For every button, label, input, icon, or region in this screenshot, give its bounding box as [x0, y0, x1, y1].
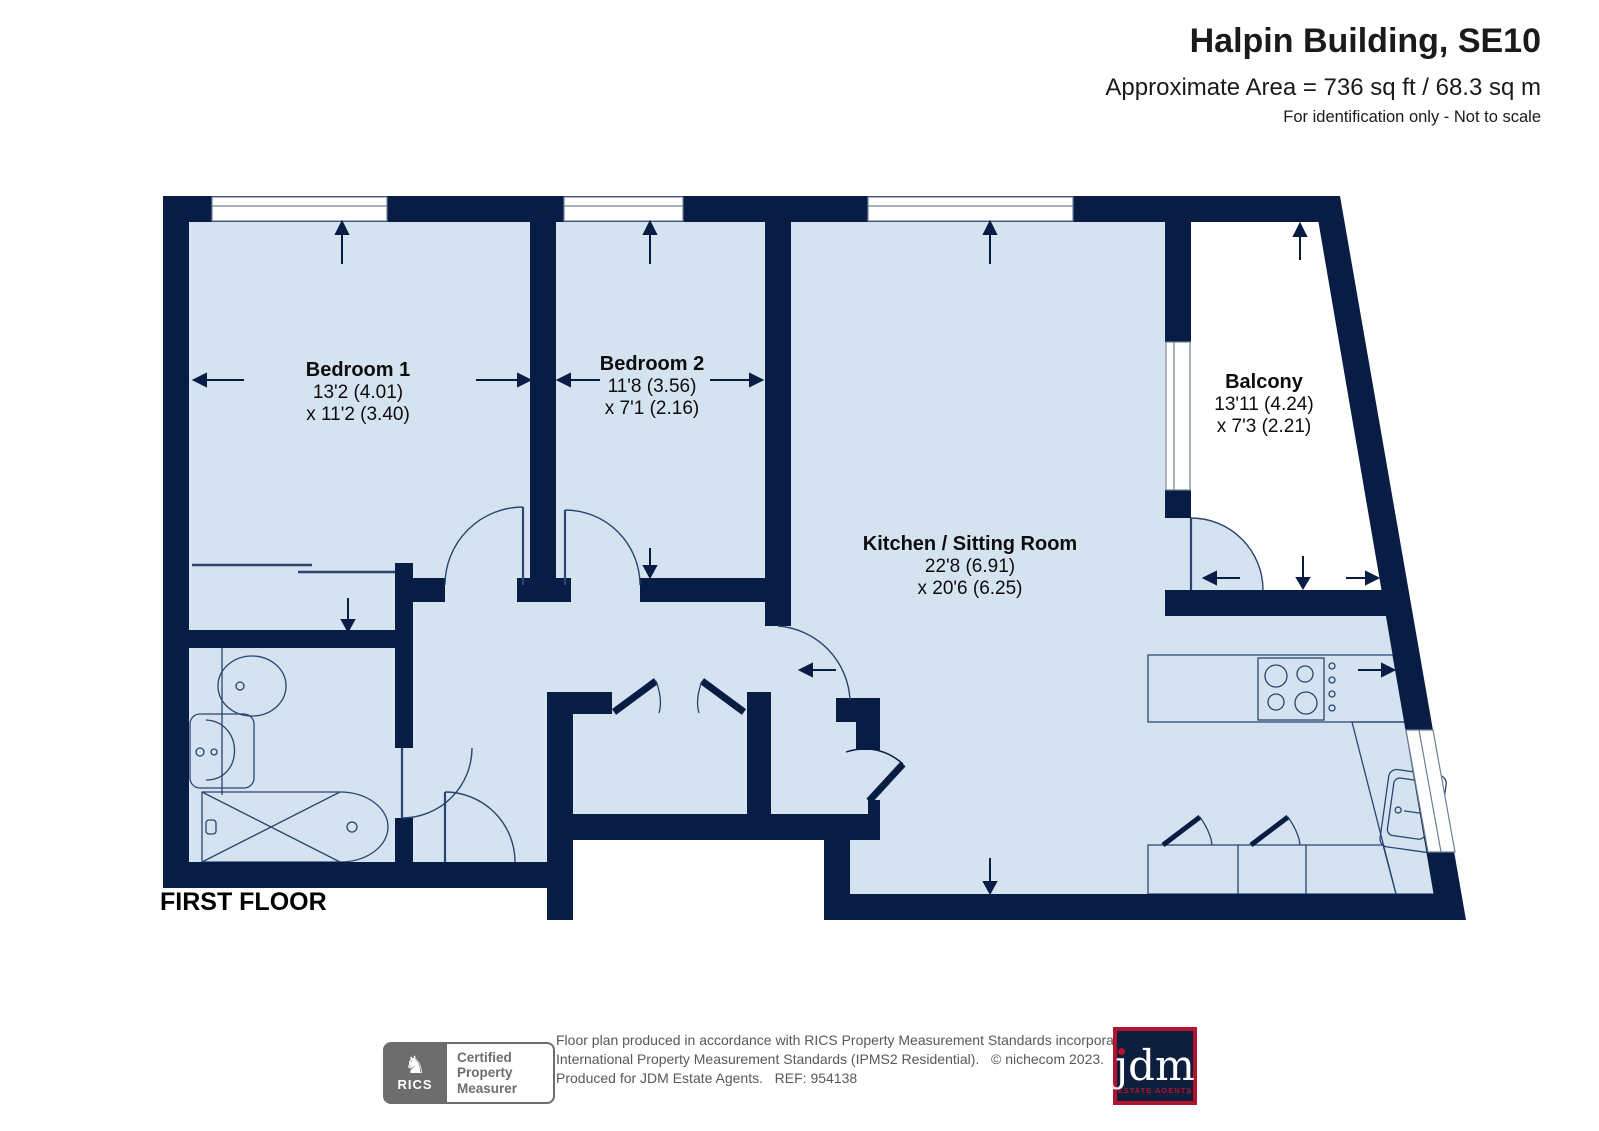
- rics-logo: ♞ RICS: [383, 1042, 447, 1104]
- jdm-estate-agents-logo: jdm ESTATE AGENTS: [1113, 1027, 1197, 1105]
- rics-cert-line: Property: [457, 1065, 553, 1081]
- wall: [163, 630, 413, 648]
- room-name: Bedroom 2: [600, 353, 704, 375]
- wall: [856, 698, 880, 750]
- wall: [1165, 490, 1191, 518]
- floor-label: FIRST FLOOR: [160, 888, 327, 917]
- window-bedroom2: [564, 197, 683, 221]
- wall: [163, 862, 573, 888]
- wall-kitchen-balcony: [1165, 196, 1191, 342]
- wall: [163, 196, 189, 888]
- label-bedroom2: Bedroom 2 11'8 (3.56) x 7'1 (2.16): [600, 353, 704, 419]
- rics-cert-line: Certified: [457, 1050, 553, 1066]
- wall: [395, 818, 413, 862]
- jdm-name: jdm: [1115, 1041, 1195, 1090]
- room-name: Balcony: [1225, 371, 1304, 393]
- room-dim: 13'11 (4.24): [1214, 394, 1313, 415]
- jdm-logo-text: jdm: [1115, 1046, 1195, 1086]
- rics-lion-icon: ♞: [404, 1055, 426, 1077]
- wall: [640, 578, 791, 602]
- room-dim: x 20'6 (6.25): [917, 578, 1022, 599]
- room-dim: 22'8 (6.91): [925, 556, 1015, 577]
- window-balcony-wall: [1166, 342, 1190, 490]
- disclaimer-text: Floor plan produced in accordance with R…: [556, 1031, 1137, 1088]
- wall-bed1-bed2: [530, 196, 556, 578]
- wall: [395, 646, 413, 748]
- wall-below-balcony: [1165, 590, 1387, 616]
- room-name: Kitchen / Sitting Room: [863, 533, 1077, 555]
- room-dim: 13'2 (4.01): [313, 382, 403, 403]
- rics-label: RICS: [397, 1077, 432, 1092]
- wall: [547, 692, 573, 920]
- outside-cutout: [573, 840, 824, 940]
- rics-cert-line: Measurer: [457, 1081, 553, 1097]
- wall-bed2-kitchen: [765, 196, 791, 578]
- label-balcony: Balcony 13'11 (4.24) x 7'3 (2.21): [1214, 371, 1313, 437]
- window-kitchen: [868, 197, 1073, 221]
- room-dim: x 11'2 (3.40): [306, 404, 410, 425]
- rics-certified-badge: ♞ RICS Certified Property Measurer: [383, 1042, 555, 1104]
- room-dim: x 7'1 (2.16): [605, 398, 699, 419]
- wall: [517, 578, 571, 602]
- room-name: Bedroom 1: [306, 359, 410, 381]
- room-dim: 11'8 (3.56): [608, 376, 697, 397]
- disclaimer-line: International Property Measurement Stand…: [556, 1050, 1137, 1069]
- disclaimer-line: Produced for JDM Estate Agents. REF: 954…: [556, 1069, 1137, 1088]
- wall: [547, 692, 612, 714]
- wall: [868, 800, 880, 816]
- floor-plan: Bedroom 1 13'2 (4.01) x 11'2 (3.40) Bedr…: [0, 0, 1599, 1131]
- window-bedroom1: [212, 197, 387, 221]
- wall: [747, 692, 771, 814]
- wall: [547, 814, 880, 840]
- label-bedroom1: Bedroom 1 13'2 (4.01) x 11'2 (3.40): [306, 359, 410, 425]
- balcony-doorway-floor: [1165, 518, 1191, 590]
- rics-cert-text: Certified Property Measurer: [447, 1042, 555, 1104]
- wall: [826, 894, 1452, 920]
- disclaimer-line: Floor plan produced in accordance with R…: [556, 1031, 1137, 1050]
- room-dim: x 7'3 (2.21): [1217, 416, 1311, 437]
